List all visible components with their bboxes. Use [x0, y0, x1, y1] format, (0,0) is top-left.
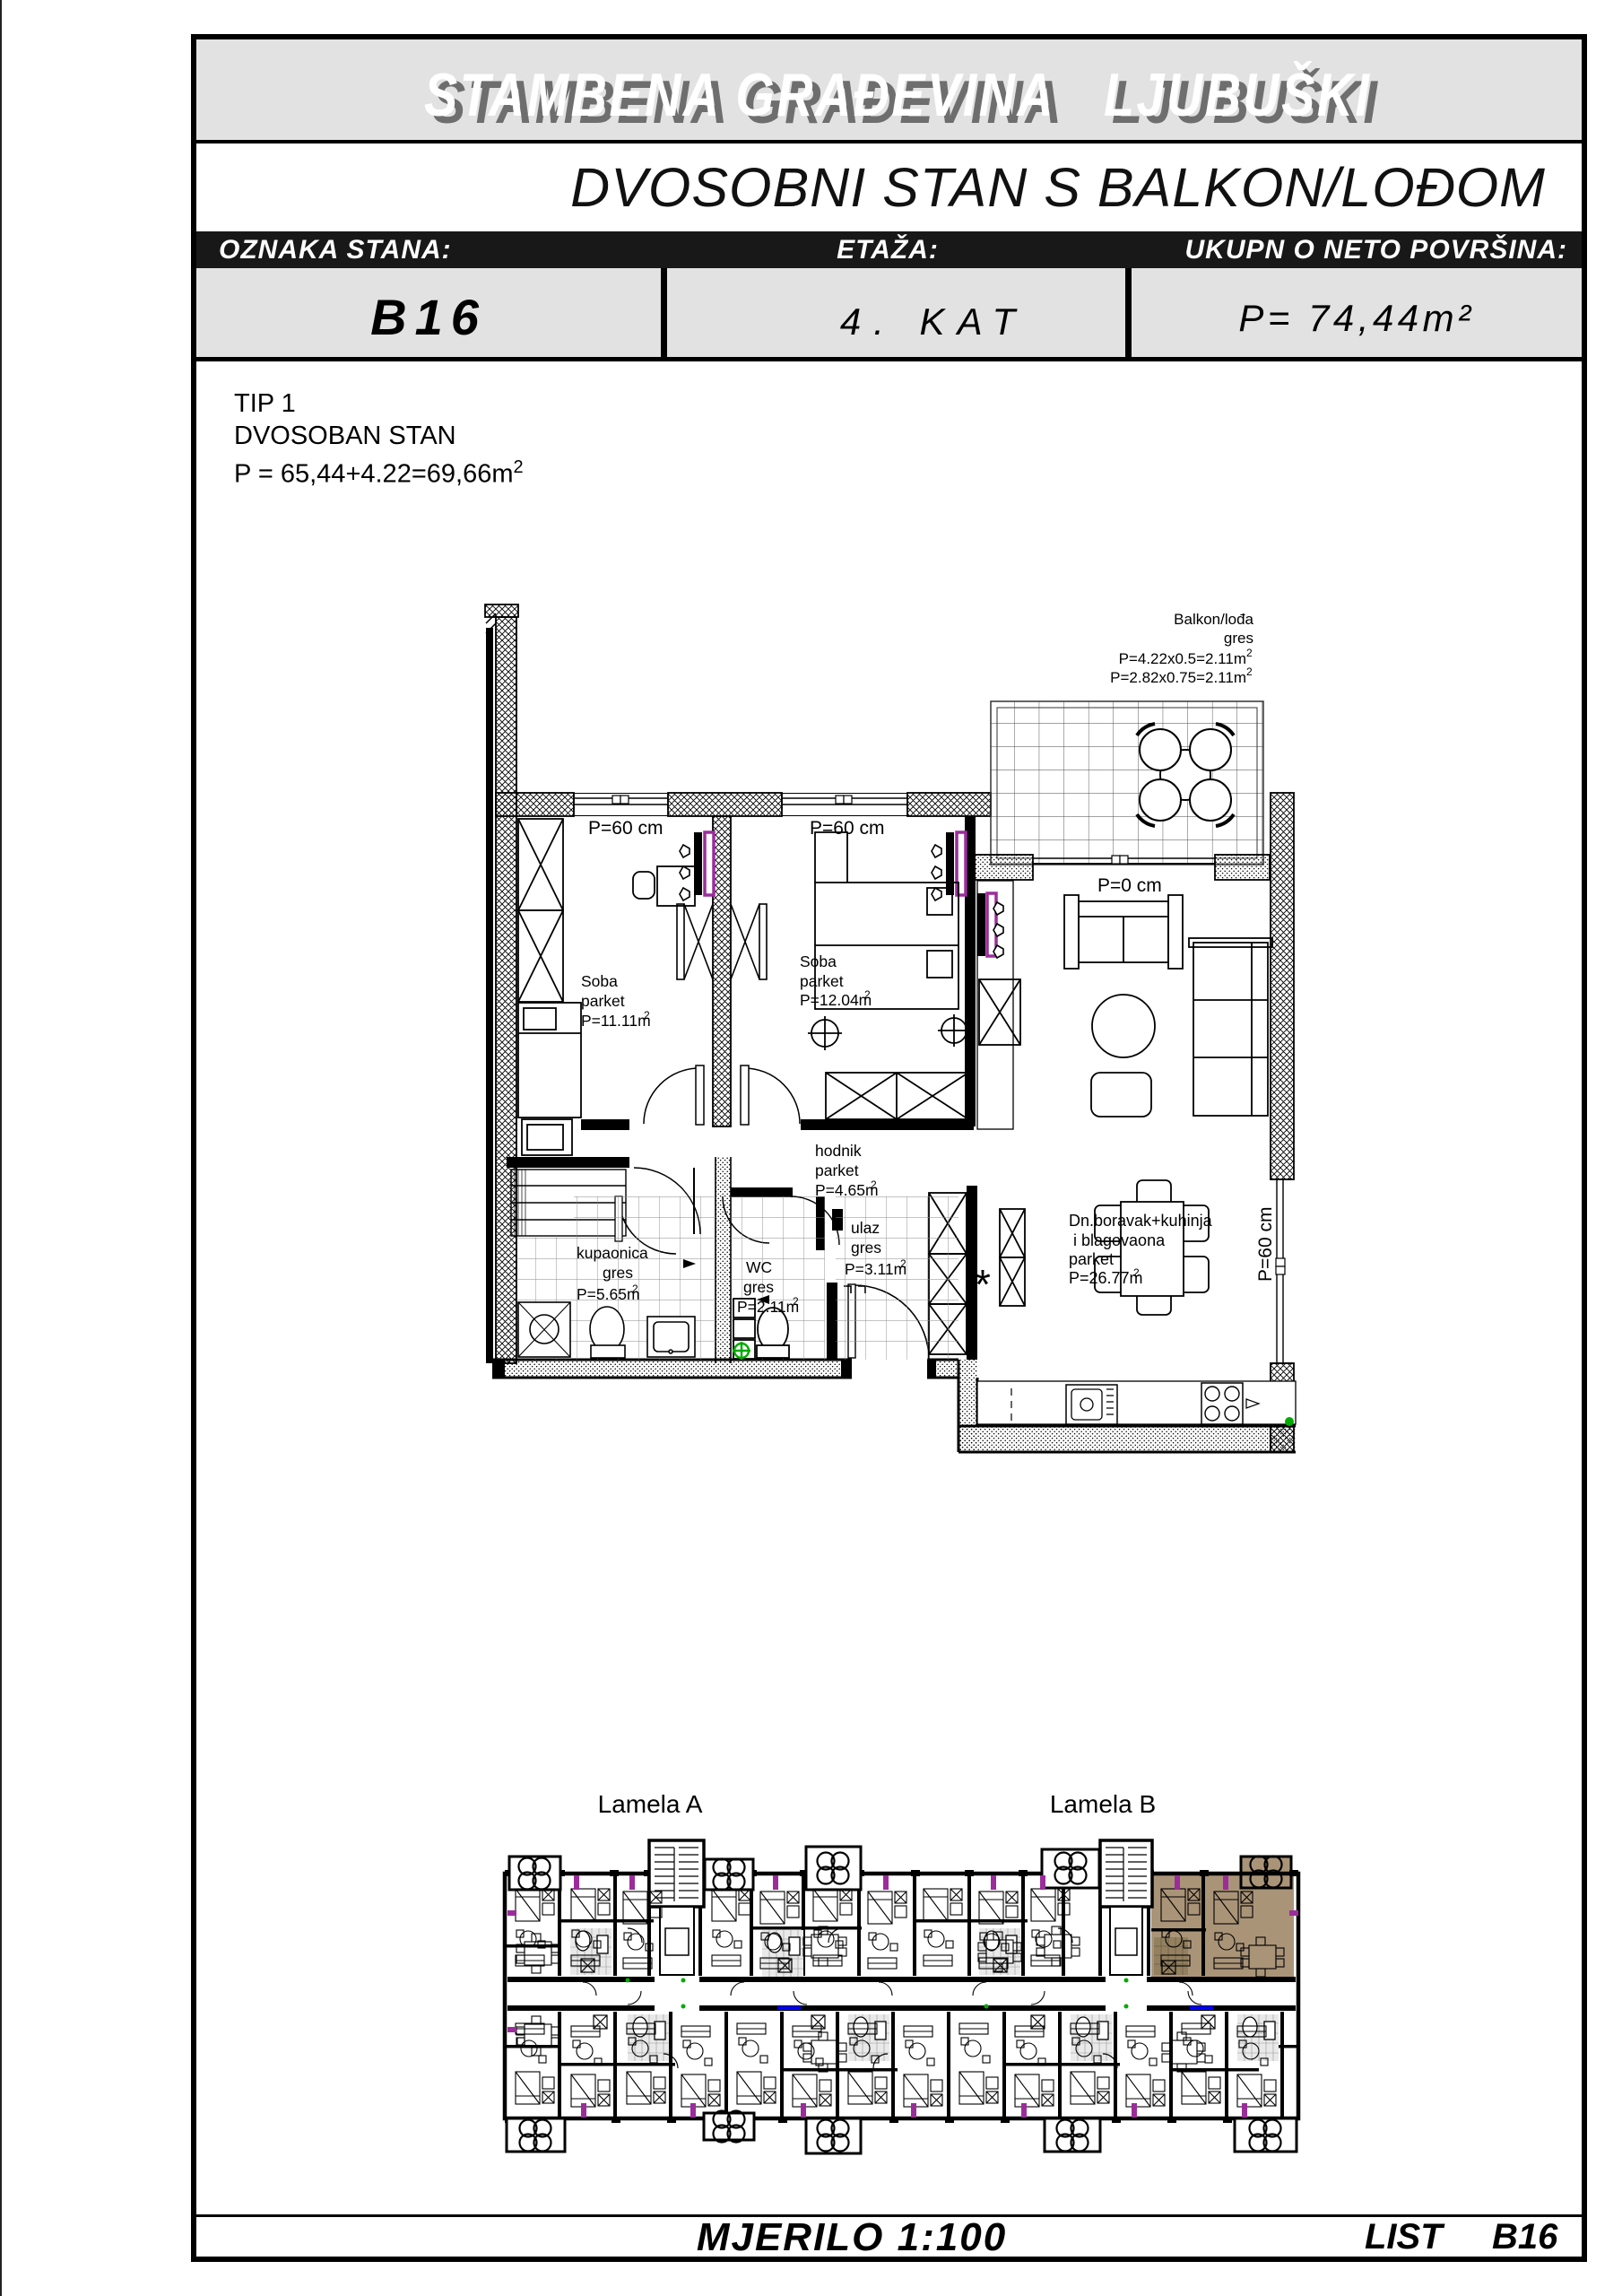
svg-text:hodnik: hodnik: [815, 1142, 862, 1160]
svg-text:parket: parket: [581, 992, 625, 1010]
svg-text:parket: parket: [800, 972, 844, 990]
svg-text:parket: parket: [815, 1161, 859, 1179]
svg-text:P=11.11m: P=11.11m: [581, 1012, 651, 1030]
svg-text:gres: gres: [603, 1264, 633, 1282]
svg-text:2: 2: [900, 1257, 906, 1270]
svg-text:P=60 cm: P=60 cm: [810, 818, 884, 839]
svg-text:ulaz: ulaz: [851, 1219, 880, 1237]
svg-text:2: 2: [864, 988, 871, 1001]
svg-text:Balkon/lođa: Balkon/lođa: [1174, 611, 1253, 628]
svg-text:2: 2: [632, 1283, 638, 1295]
svg-text:P=60 cm: P=60 cm: [1255, 1207, 1276, 1282]
svg-text:P=12.04m: P=12.04m: [800, 991, 872, 1009]
svg-text:gres: gres: [851, 1239, 881, 1257]
svg-text:Dn.boravak+kuhinja: Dn.boravak+kuhinja: [1069, 1212, 1213, 1230]
svg-text:2: 2: [1133, 1266, 1140, 1279]
svg-text:i blagovaona: i blagovaona: [1073, 1231, 1166, 1249]
svg-text:2: 2: [1246, 665, 1253, 678]
svg-text:P=2.82x0.75=2.11m: P=2.82x0.75=2.11m: [1110, 669, 1246, 686]
svg-text:2: 2: [793, 1295, 799, 1308]
svg-text:P=4.22x0.5=2.11m: P=4.22x0.5=2.11m: [1119, 650, 1246, 667]
svg-text:P=2.11m: P=2.11m: [737, 1298, 799, 1316]
svg-text:Soba: Soba: [581, 972, 618, 990]
svg-text:P=0 cm: P=0 cm: [1097, 875, 1162, 896]
svg-text:parket: parket: [1069, 1250, 1114, 1268]
svg-text:2: 2: [1246, 647, 1253, 659]
svg-text:kupaonica: kupaonica: [577, 1244, 648, 1262]
svg-text:gres: gres: [1224, 630, 1253, 647]
svg-text:P=4.65m: P=4.65m: [815, 1181, 879, 1199]
svg-text:P=26.77m: P=26.77m: [1069, 1269, 1143, 1287]
svg-text:Soba: Soba: [800, 952, 837, 970]
svg-text:*: *: [975, 1261, 991, 1308]
svg-text:P=3.11m: P=3.11m: [845, 1260, 906, 1278]
svg-text:WC: WC: [746, 1258, 772, 1276]
svg-text:2: 2: [644, 1009, 650, 1022]
svg-text:P=60 cm: P=60 cm: [588, 818, 663, 839]
svg-text:gres: gres: [743, 1278, 774, 1296]
svg-text:P=5.65m: P=5.65m: [577, 1285, 640, 1303]
svg-text:2: 2: [871, 1178, 877, 1191]
